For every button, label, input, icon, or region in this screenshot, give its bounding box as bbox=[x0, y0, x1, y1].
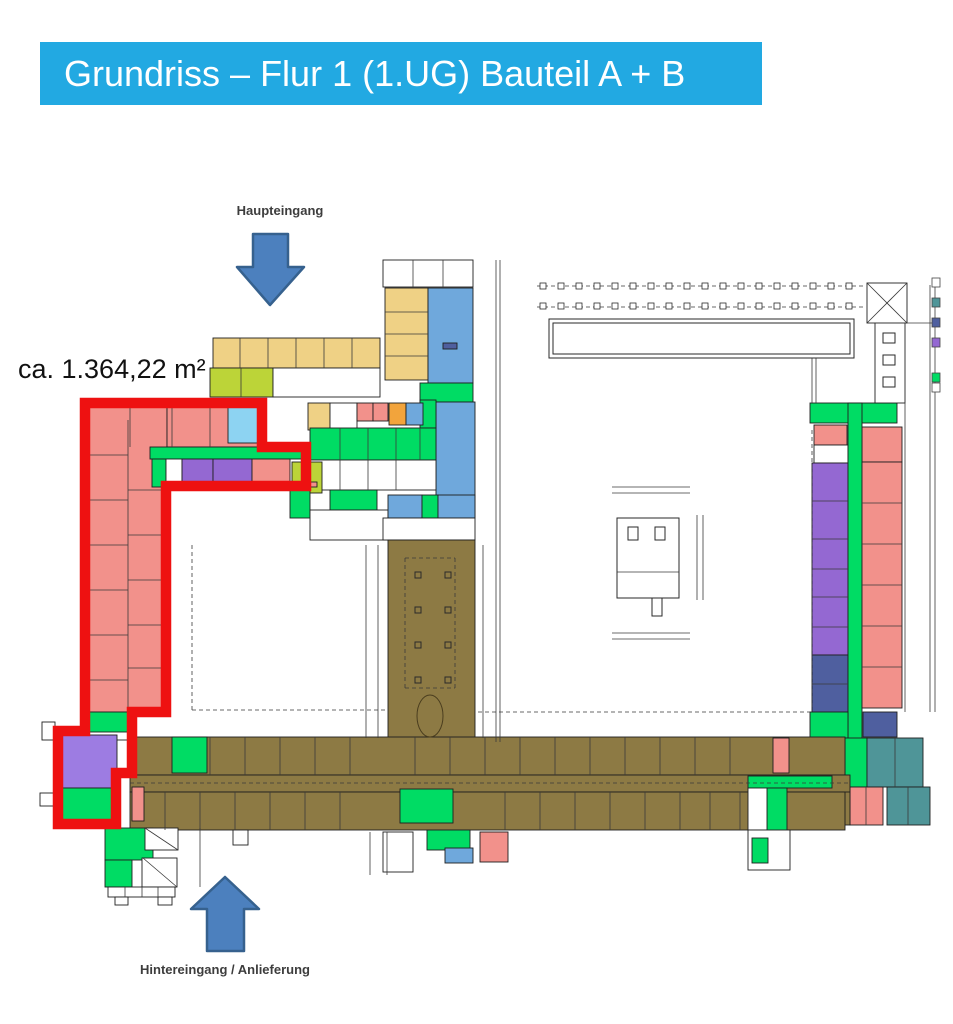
legend-marker bbox=[932, 373, 940, 382]
structure-box bbox=[652, 598, 662, 616]
room bbox=[383, 518, 475, 540]
colonnade-column bbox=[576, 303, 582, 309]
room bbox=[130, 792, 845, 830]
room bbox=[105, 860, 132, 887]
room bbox=[383, 260, 473, 287]
structure-box bbox=[549, 319, 854, 358]
colonnade-column bbox=[846, 283, 852, 289]
room bbox=[130, 737, 845, 775]
room bbox=[330, 403, 357, 430]
room bbox=[62, 788, 117, 824]
room bbox=[308, 403, 330, 430]
floor-plan bbox=[0, 0, 953, 1024]
room bbox=[115, 897, 128, 905]
room bbox=[310, 510, 388, 540]
colonnade-column bbox=[828, 283, 834, 289]
room bbox=[88, 712, 131, 732]
room bbox=[427, 830, 470, 850]
colonnade-column bbox=[612, 303, 618, 309]
room bbox=[373, 403, 388, 421]
room bbox=[383, 832, 413, 872]
colonnade-column bbox=[576, 283, 582, 289]
rear-entrance-arrow-icon bbox=[191, 877, 259, 951]
colonnade-column bbox=[810, 303, 816, 309]
room bbox=[422, 495, 438, 518]
room bbox=[748, 776, 832, 788]
room bbox=[389, 403, 406, 425]
room bbox=[108, 887, 175, 897]
room bbox=[480, 832, 508, 862]
room bbox=[420, 383, 473, 402]
room bbox=[812, 463, 848, 655]
colonnade-column bbox=[648, 283, 654, 289]
room bbox=[130, 775, 850, 792]
colonnade-column bbox=[774, 283, 780, 289]
room bbox=[773, 738, 789, 773]
colonnade-column bbox=[540, 303, 546, 309]
room bbox=[400, 789, 453, 823]
room bbox=[213, 338, 380, 368]
room bbox=[752, 838, 768, 863]
room bbox=[814, 425, 847, 445]
colonnade-column bbox=[612, 283, 618, 289]
structure-box bbox=[617, 518, 679, 598]
colonnade-column bbox=[756, 283, 762, 289]
room bbox=[132, 787, 144, 821]
colonnade-column bbox=[738, 283, 744, 289]
structure-box bbox=[655, 527, 665, 540]
room bbox=[290, 490, 310, 518]
legend-marker bbox=[932, 383, 940, 392]
room bbox=[273, 368, 380, 397]
room bbox=[428, 288, 473, 383]
colonnade-column bbox=[756, 303, 762, 309]
colonnade-column bbox=[792, 303, 798, 309]
colonnade-column bbox=[702, 303, 708, 309]
legend-marker bbox=[932, 278, 940, 287]
colonnade-column bbox=[594, 283, 600, 289]
rooms-layer bbox=[40, 260, 930, 905]
colonnade-column bbox=[828, 303, 834, 309]
room bbox=[210, 368, 273, 397]
colonnade-column bbox=[630, 283, 636, 289]
colonnade-column bbox=[666, 283, 672, 289]
room bbox=[233, 830, 248, 845]
legend-marker bbox=[932, 298, 940, 307]
room bbox=[748, 788, 767, 830]
main-entrance-arrow-icon bbox=[237, 234, 304, 305]
room bbox=[158, 897, 172, 905]
colonnade-column bbox=[540, 283, 546, 289]
legend-layer bbox=[932, 278, 940, 392]
legend-marker bbox=[932, 318, 940, 327]
colonnade-column bbox=[666, 303, 672, 309]
colonnade-column bbox=[594, 303, 600, 309]
room bbox=[887, 787, 930, 825]
colonnade-column bbox=[792, 283, 798, 289]
room bbox=[863, 712, 897, 737]
colonnade-column bbox=[648, 303, 654, 309]
colonnade-column bbox=[702, 283, 708, 289]
colonnade-column bbox=[684, 283, 690, 289]
colonnade-column bbox=[558, 283, 564, 289]
colonnade-column bbox=[738, 303, 744, 309]
room bbox=[850, 787, 883, 825]
legend-marker bbox=[932, 338, 940, 347]
colonnade-column bbox=[810, 283, 816, 289]
colonnade-column bbox=[720, 303, 726, 309]
colonnade-column bbox=[720, 283, 726, 289]
colonnade-column bbox=[684, 303, 690, 309]
room bbox=[172, 737, 207, 773]
room bbox=[62, 735, 117, 788]
room bbox=[812, 655, 848, 712]
slide: Grundriss – Flur 1 (1.UG) Bauteil A + B … bbox=[0, 0, 953, 1024]
room bbox=[310, 460, 436, 490]
room bbox=[406, 403, 423, 425]
room bbox=[443, 343, 457, 349]
structure-box bbox=[628, 527, 638, 540]
room bbox=[810, 712, 848, 738]
colonnade-column bbox=[630, 303, 636, 309]
room bbox=[814, 445, 848, 463]
room bbox=[310, 428, 436, 460]
room bbox=[848, 403, 862, 780]
room bbox=[875, 323, 905, 403]
room bbox=[445, 848, 473, 863]
room bbox=[330, 490, 377, 510]
colonnade-column bbox=[558, 303, 564, 309]
colonnade-column bbox=[774, 303, 780, 309]
room bbox=[862, 427, 902, 462]
room bbox=[388, 540, 475, 742]
room bbox=[388, 495, 422, 518]
room bbox=[357, 403, 373, 421]
colonnade-column bbox=[846, 303, 852, 309]
structure-box bbox=[553, 323, 850, 354]
room bbox=[438, 495, 475, 518]
